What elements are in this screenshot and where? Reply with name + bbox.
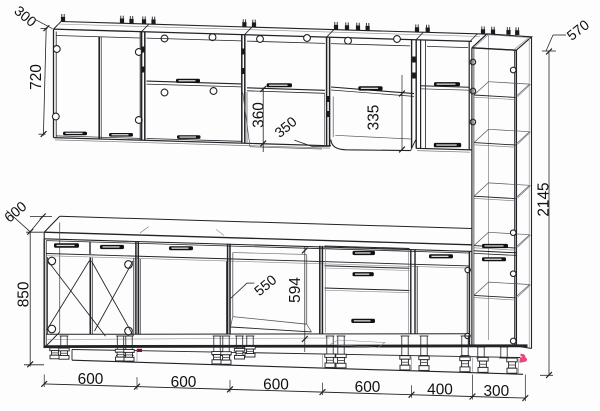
svg-text:600: 600 xyxy=(263,377,289,394)
svg-text:360: 360 xyxy=(251,102,268,128)
svg-text:400: 400 xyxy=(427,381,453,398)
svg-text:600: 600 xyxy=(355,379,381,396)
svg-text:594: 594 xyxy=(287,277,304,303)
svg-text:335: 335 xyxy=(366,105,383,131)
svg-text:300: 300 xyxy=(483,383,509,400)
svg-text:600: 600 xyxy=(78,371,104,388)
svg-text:720: 720 xyxy=(28,64,45,90)
svg-text:600: 600 xyxy=(171,374,197,391)
svg-text:2145: 2145 xyxy=(536,182,553,216)
svg-text:850: 850 xyxy=(15,282,32,308)
